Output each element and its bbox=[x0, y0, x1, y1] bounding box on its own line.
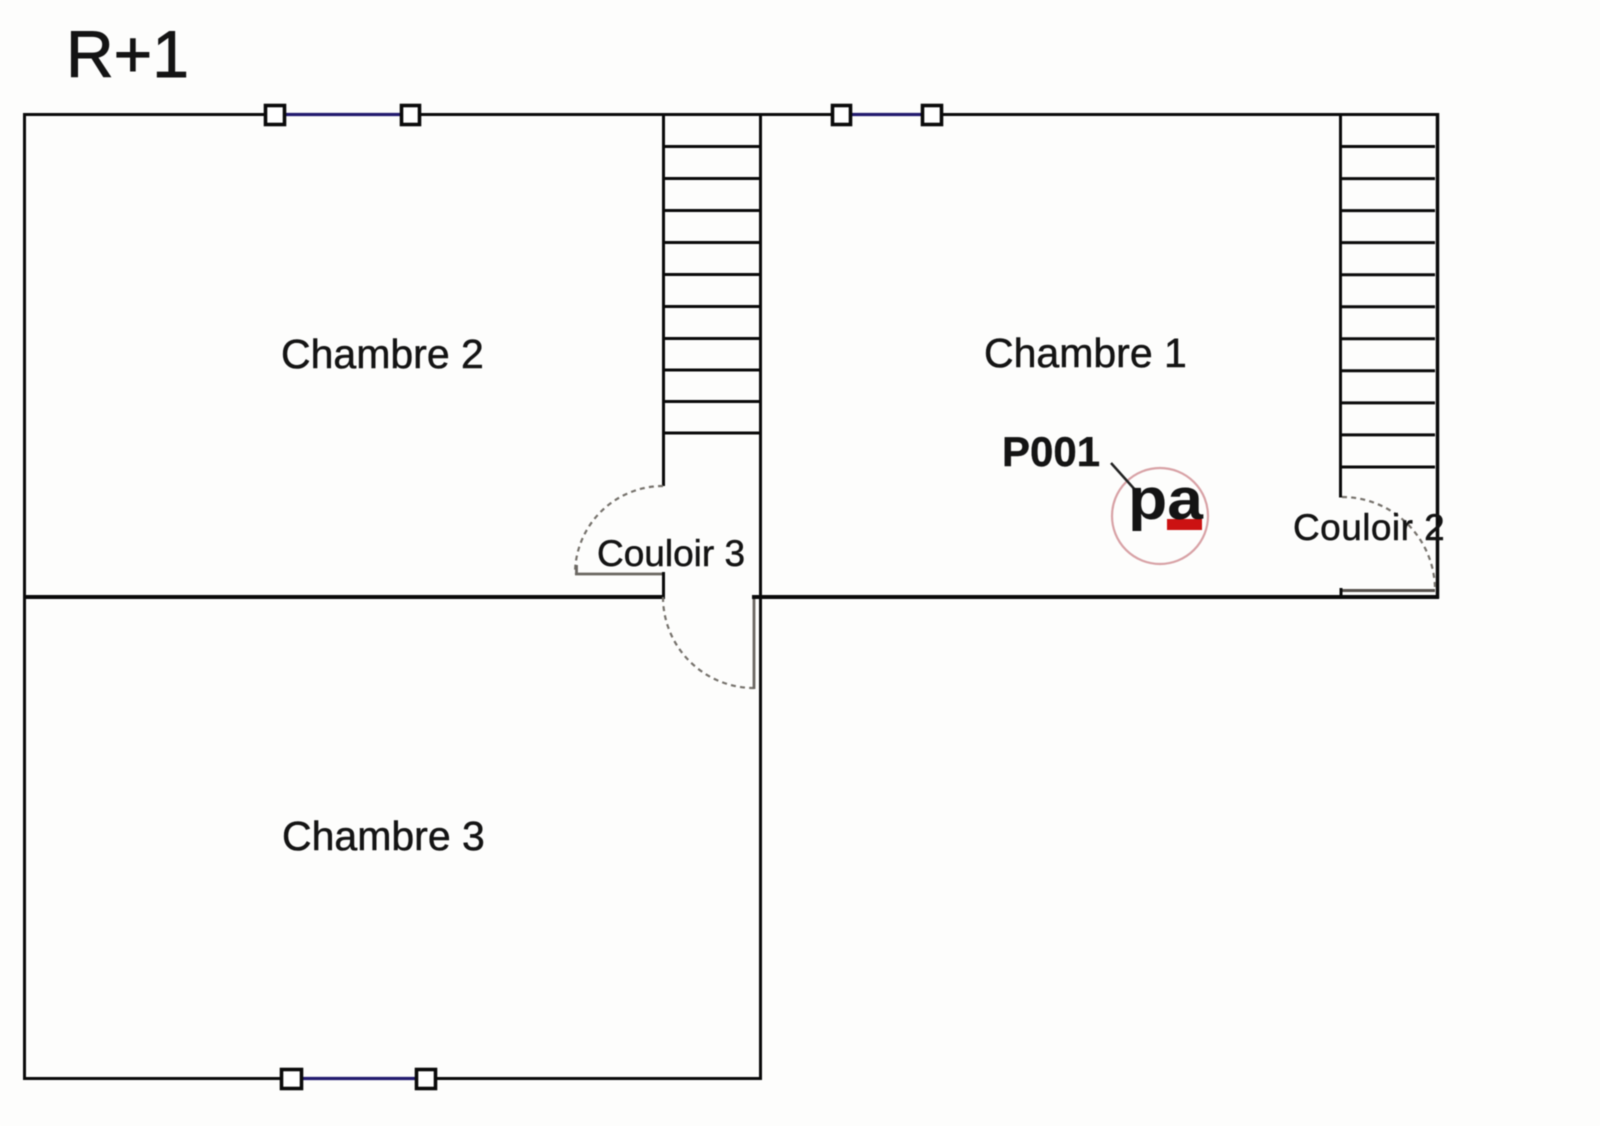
svg-text:Couloir 2: Couloir 2 bbox=[1293, 507, 1445, 548]
svg-text:Chambre 1: Chambre 1 bbox=[984, 330, 1187, 376]
svg-text:R+1: R+1 bbox=[66, 17, 189, 91]
svg-text:Couloir 3: Couloir 3 bbox=[597, 533, 745, 574]
svg-text:pa: pa bbox=[1128, 467, 1204, 532]
svg-text:Chambre 2: Chambre 2 bbox=[281, 331, 484, 377]
svg-text:Chambre 3: Chambre 3 bbox=[282, 813, 485, 859]
svg-text:P001: P001 bbox=[1002, 428, 1100, 475]
